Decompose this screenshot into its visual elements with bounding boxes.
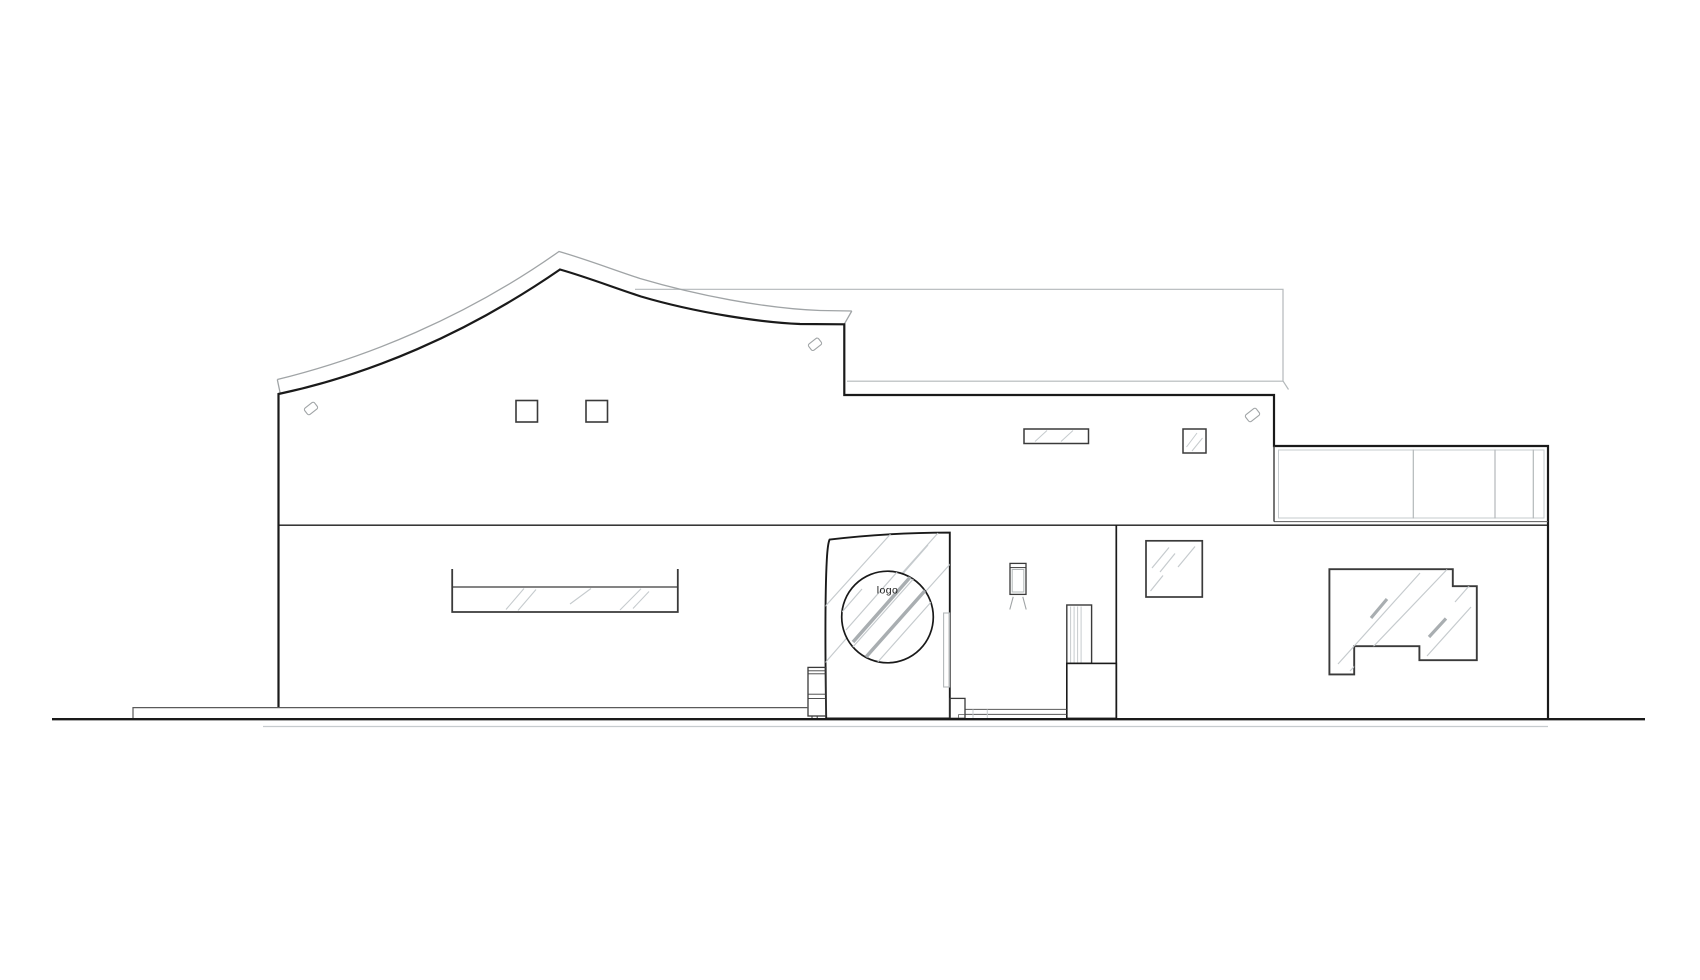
angular-window xyxy=(1329,569,1476,674)
entry-side-window xyxy=(1146,541,1202,597)
right-wing-glazed-band xyxy=(1274,446,1544,522)
entry-walkway xyxy=(965,709,1067,718)
portal-logo-text: logo xyxy=(877,585,898,597)
ribbon-window xyxy=(452,569,678,612)
elevation-drawing: logo xyxy=(0,0,1700,980)
wall-vent-left xyxy=(304,402,319,416)
louvered-panel xyxy=(1067,605,1092,663)
wall-sign xyxy=(1010,563,1026,609)
plinth-line xyxy=(133,708,808,719)
rear-building-outline xyxy=(635,289,1289,389)
entry-portal: logo xyxy=(808,528,965,719)
elevation-drawing-canvas: logo xyxy=(0,0,1700,980)
menu-stand xyxy=(808,667,826,719)
entry-recess xyxy=(965,525,1116,719)
entry-step xyxy=(950,698,965,718)
wall-vent-right xyxy=(1245,407,1261,422)
horizontal-band-window xyxy=(1024,429,1089,444)
service-box xyxy=(1067,663,1117,718)
small-square-window-2 xyxy=(586,401,608,423)
wall-vent-center xyxy=(808,337,823,351)
facade-datum-line xyxy=(279,522,1549,526)
small-square-window-1 xyxy=(516,401,538,423)
small-hatched-window xyxy=(1183,429,1206,453)
